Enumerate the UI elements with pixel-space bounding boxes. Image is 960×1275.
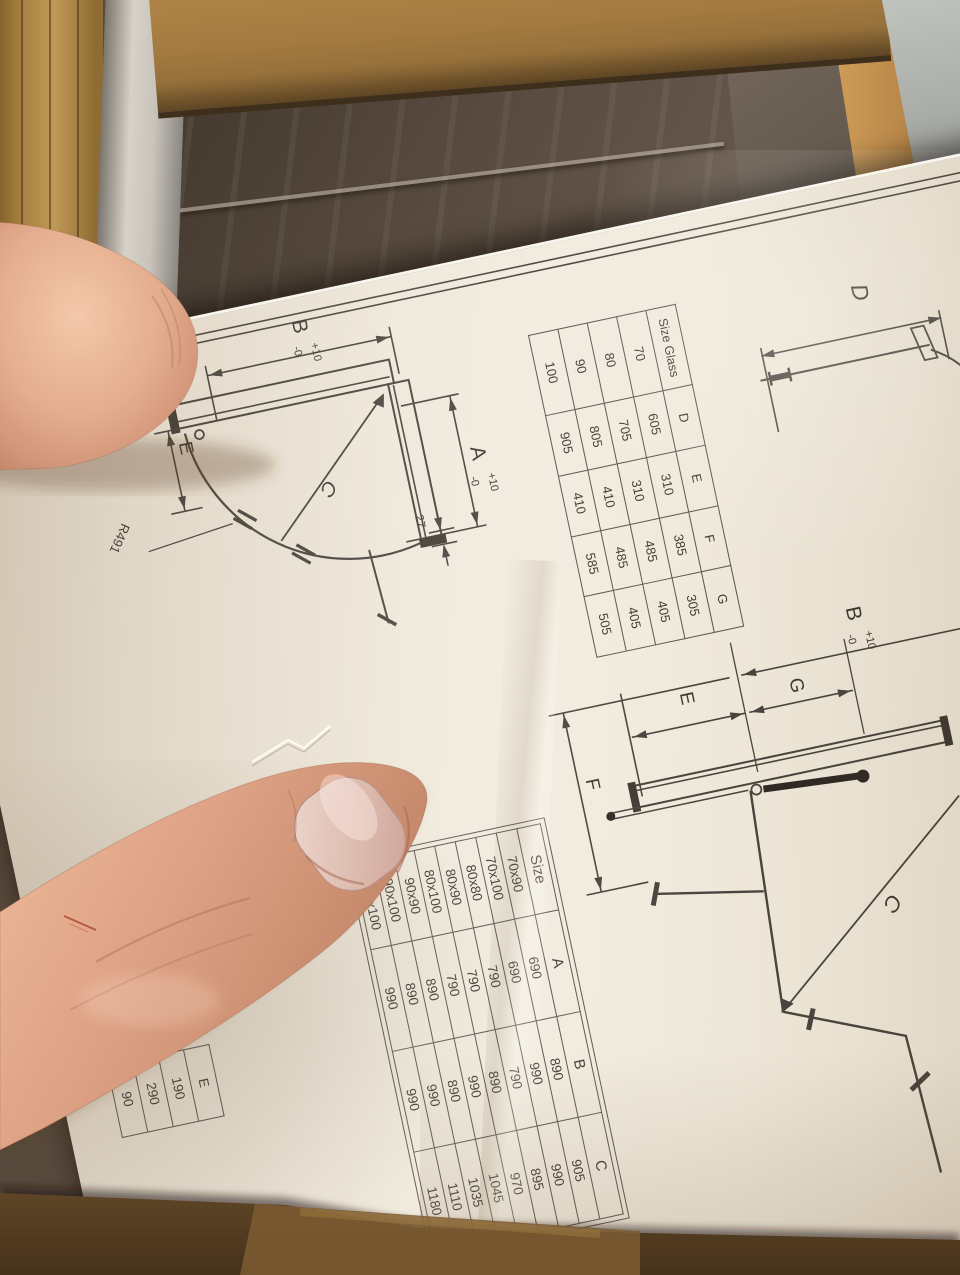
label-E-corner: E (675, 690, 698, 707)
wall-rail-corner-inner (637, 726, 942, 791)
label-G: G (784, 676, 808, 695)
door-pivot-corner (750, 784, 762, 796)
pivot-extension-line (730, 643, 757, 772)
diagonal-C-corner (750, 796, 960, 1009)
arrowhead (208, 369, 222, 380)
arrowhead (446, 397, 457, 411)
label-A: A (465, 444, 490, 462)
dim-line-G (749, 690, 853, 712)
label-F: F (581, 777, 604, 793)
label-C-quadrant: C (315, 476, 342, 501)
arrowhead (633, 730, 647, 741)
arrowhead (178, 496, 189, 510)
door-bar-cap (855, 768, 870, 783)
arrowhead (376, 333, 390, 344)
label-B2-tol-minus: -0 (844, 633, 858, 645)
arrowhead (440, 543, 451, 557)
arrowhead (434, 517, 445, 531)
label-A-tol-plus: +10 (485, 472, 501, 493)
arrowhead (742, 668, 756, 679)
paper-highlight-top-right (560, 150, 960, 570)
label-B-quadrant: B (287, 317, 312, 335)
label-R491: R491 (107, 521, 133, 555)
dim-extension-E-corner (620, 694, 642, 797)
diagonal-C-quadrant (256, 397, 406, 541)
rail-cap-top (939, 715, 953, 746)
wall-rail-inner-line (178, 377, 389, 422)
dim-line-B-corner (741, 615, 960, 675)
door-pivot (194, 429, 205, 440)
label-27: 27 (412, 513, 429, 529)
dim-line-B-quadrant (207, 337, 391, 376)
arrowhead (560, 714, 571, 728)
dim-line-E-corner (632, 713, 745, 737)
label-B2-tol-plus: +10 (862, 630, 878, 651)
panel-stub (655, 872, 764, 914)
panel-edge (737, 791, 797, 1012)
wall-rail-vertical (172, 360, 394, 430)
label-B-corner: B (841, 604, 866, 622)
label-A-tol-minus: -0 (467, 475, 481, 487)
arrowhead (750, 705, 764, 716)
dim-extension-E-quadrant (154, 427, 202, 514)
label-C-corner: C (878, 890, 908, 918)
arrowhead (837, 687, 851, 698)
paper-shadow-bottom (420, 1050, 960, 1250)
label-E-quadrant: E (174, 440, 197, 457)
arrowhead (471, 511, 482, 525)
label-B-tol-plus: +10 (308, 342, 324, 363)
photo-scene: D A +10 -0 27 B +10 -0 E C R491 B +10 -0… (0, 0, 960, 1275)
arrowhead (594, 877, 605, 891)
dim-line-A (450, 396, 478, 527)
arrowhead (730, 710, 744, 721)
glass-edge-line (369, 549, 389, 624)
dim-line-F (563, 713, 601, 892)
radius-leader-line (147, 524, 235, 552)
wall-rail-corner (632, 720, 950, 808)
door-bar (763, 769, 858, 796)
